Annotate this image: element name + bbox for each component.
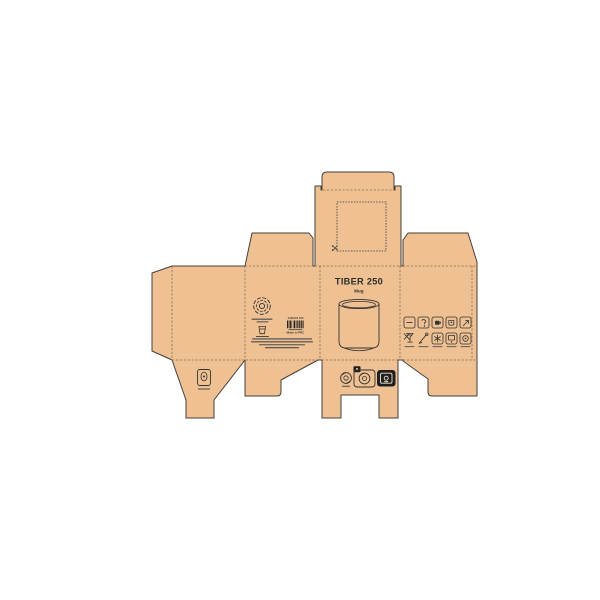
mockup-canvas: AHG007 100 Made in PRC TIBER 250 Mug <box>0 0 600 600</box>
barcode-label: AHG007 100 <box>288 316 304 320</box>
origin-text: Made in PRC <box>287 331 306 335</box>
product-subtitle: Mug <box>354 289 364 294</box>
black-disposal-mark <box>377 370 396 387</box>
dieline-board-outline <box>152 172 477 418</box>
dieline-drawing: AHG007 100 Made in PRC TIBER 250 Mug <box>0 0 600 600</box>
product-title: TIBER 250 <box>335 277 383 287</box>
